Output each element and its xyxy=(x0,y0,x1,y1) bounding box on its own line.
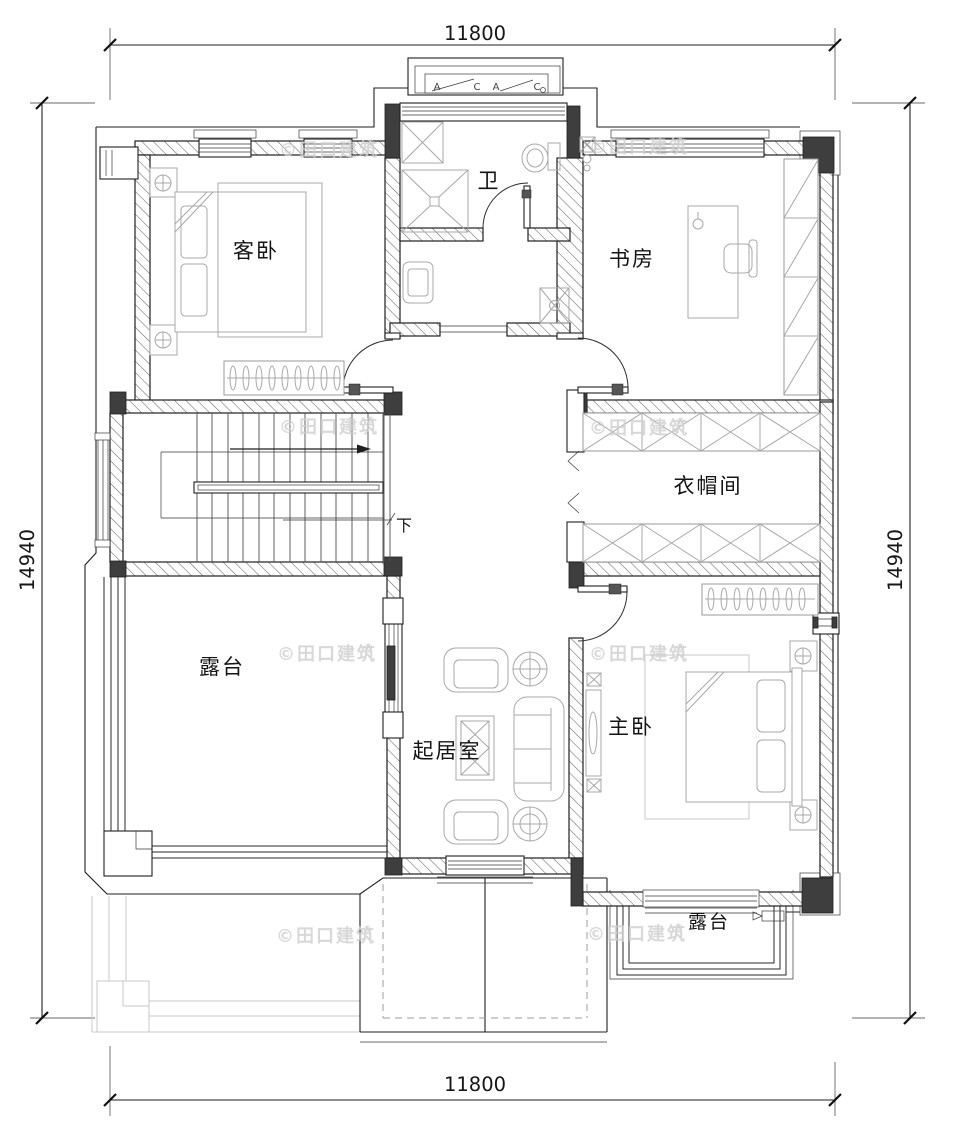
stairs-down-label: 下 xyxy=(396,516,412,535)
dimension-left: 14940 xyxy=(16,97,95,1024)
porch-roof-outline xyxy=(360,878,607,1042)
svg-text:©田口建筑: ©田口建筑 xyxy=(587,923,687,945)
svg-text:®: ® xyxy=(676,136,685,146)
lower-storey-underlay xyxy=(92,896,360,1032)
label-guest-bedroom: 客卧 xyxy=(233,239,279,263)
study-wardrobe xyxy=(784,159,818,395)
label-living-room: 起居室 xyxy=(413,739,482,763)
watermark: ©田口建筑® xyxy=(587,923,687,945)
master-tv-console xyxy=(586,673,601,792)
dimension-top-value: 11800 xyxy=(444,22,506,45)
toilet xyxy=(522,143,560,172)
svg-text:©田口建筑: ©田口建筑 xyxy=(279,416,379,438)
svg-text:®: ® xyxy=(366,139,375,149)
svg-text:©田口建筑: ©田口建筑 xyxy=(279,139,379,161)
watermark: ©田口建筑® xyxy=(589,643,689,665)
svg-text:®: ® xyxy=(674,923,683,933)
watermark: ©田口建筑® xyxy=(279,139,379,161)
window-tag-c1: C xyxy=(474,82,481,93)
bay-window-transom: A C A C xyxy=(408,58,563,95)
label-bathroom: 卫 xyxy=(478,169,501,193)
guest-bedroom-door xyxy=(343,340,393,395)
dimension-bottom-value: 11800 xyxy=(444,1073,506,1096)
shower-tile xyxy=(402,122,443,163)
svg-text:©田口建筑: ©田口建筑 xyxy=(589,136,689,158)
washbasin xyxy=(403,262,433,303)
master-wardrobe xyxy=(702,584,818,615)
dimension-bottom: 11800 xyxy=(104,1046,841,1116)
svg-text:®: ® xyxy=(676,417,685,427)
svg-text:®: ® xyxy=(363,925,372,935)
label-cloakroom: 衣帽间 xyxy=(674,474,743,498)
bathroom-fixtures xyxy=(402,122,569,323)
window-tag-a2: A xyxy=(493,82,500,93)
label-terrace-west: 露台 xyxy=(199,655,245,679)
master-bedroom-furniture xyxy=(586,584,818,830)
label-study: 书房 xyxy=(609,247,655,271)
shower-pan xyxy=(402,170,468,232)
terrace-west-railing xyxy=(104,577,387,876)
dimension-right-value: 14940 xyxy=(884,529,907,591)
svg-text:©田口建筑: ©田口建筑 xyxy=(589,417,689,439)
label-terrace-south: 露台 xyxy=(688,911,730,933)
watermark: ©田口建筑® xyxy=(589,417,689,439)
watermark: ©田口建筑® xyxy=(276,925,376,947)
svg-text:©田口建筑: ©田口建筑 xyxy=(277,643,377,665)
dimension-right: 14940 xyxy=(852,97,925,1024)
study-furniture xyxy=(688,159,818,395)
sofa xyxy=(514,697,564,801)
watermark: ©田口建筑® xyxy=(277,643,377,665)
dimension-left-value: 14940 xyxy=(16,529,39,591)
label-master-bedroom: 主卧 xyxy=(608,715,654,739)
svg-text:©田口建筑: ©田口建筑 xyxy=(276,925,376,947)
watermark: ©田口建筑® xyxy=(279,416,379,438)
svg-text:®: ® xyxy=(366,416,375,426)
guest-wardrobe xyxy=(224,361,344,395)
svg-text:®: ® xyxy=(364,643,373,653)
svg-text:®: ® xyxy=(676,643,685,653)
master-bedroom-door xyxy=(578,584,627,641)
window-tag-a1: A xyxy=(434,82,441,93)
floor-plan-drawing: 11800 11800 14940 14940 xyxy=(0,0,960,1142)
svg-text:©田口建筑: ©田口建筑 xyxy=(589,643,689,665)
watermark: ©田口建筑® xyxy=(589,136,689,158)
window-tag-c2: C xyxy=(534,82,541,93)
study-door xyxy=(578,338,628,395)
floor-plan-page: 11800 11800 14940 14940 xyxy=(0,0,960,1142)
guest-bedroom-furniture xyxy=(150,168,344,395)
